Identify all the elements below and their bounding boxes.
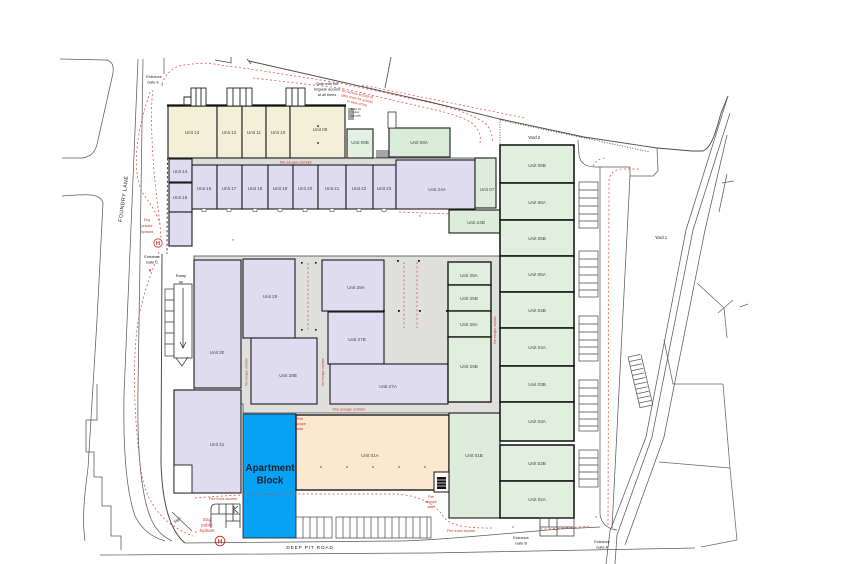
svg-text:Unit 03A: Unit 03A (528, 419, 547, 424)
svg-text:fire escape corridor: fire escape corridor (321, 357, 325, 385)
svg-text:Unit 04B: Unit 04B (528, 308, 546, 313)
svg-text:Apartment: Apartment (246, 463, 296, 474)
svg-text:Entrance: Entrance (513, 535, 529, 540)
svg-text:Unit 11: Unit 11 (247, 130, 262, 135)
svg-text:Fire: Fire (428, 495, 434, 499)
svg-text:fire escape corridor: fire escape corridor (245, 357, 249, 385)
svg-text:Gate B: Gate B (515, 541, 528, 546)
svg-text:Unit 24A: Unit 24A (428, 187, 447, 192)
svg-text:H: H (156, 241, 160, 247)
svg-text:stair: stair (297, 427, 305, 431)
svg-text:*: * (512, 526, 514, 532)
svg-text:H: H (218, 538, 223, 545)
svg-text:Gate C: Gate C (146, 260, 159, 265)
svg-text:car park: car park (351, 113, 361, 117)
svg-text:Unit 07: Unit 07 (480, 187, 495, 192)
svg-text:fire escape corridor: fire escape corridor (493, 315, 497, 343)
svg-text:Unit 08A: Unit 08A (410, 140, 429, 145)
svg-text:Entrance: Entrance (144, 254, 160, 259)
svg-text:Unit 31: Unit 31 (210, 442, 225, 447)
svg-text:up: up (179, 279, 183, 284)
svg-text:Gate with fire: Gate with fire (316, 81, 339, 86)
svg-text:Unit 02A: Unit 02A (528, 497, 547, 502)
svg-text:Unit 04A: Unit 04A (528, 345, 547, 350)
svg-text:Fire truck access: Fire truck access (447, 529, 475, 533)
svg-text:hydrant: hydrant (200, 528, 215, 533)
svg-text:escape: escape (425, 500, 437, 504)
svg-text:Unit 05A: Unit 05A (528, 272, 547, 277)
svg-text:*: * (419, 215, 421, 221)
svg-text:Unit 28B: Unit 28B (279, 373, 297, 378)
svg-text:Unit 18: Unit 18 (248, 186, 263, 191)
svg-text:*: * (595, 516, 597, 522)
svg-text:Unit 20: Unit 20 (298, 186, 313, 191)
svg-text:Unit 21: Unit 21 (325, 186, 340, 191)
svg-text:Block: Block (257, 476, 284, 487)
svg-text:Unit 29: Unit 29 (263, 294, 278, 299)
svg-text:Unit 02B: Unit 02B (528, 461, 546, 466)
svg-text:DEEP PIT ROAD: DEEP PIT ROAD (286, 545, 333, 551)
svg-text:Entrance: Entrance (146, 74, 162, 79)
svg-text:Unit 12: Unit 12 (222, 130, 237, 135)
svg-text:escape: escape (294, 422, 306, 426)
svg-text:Unit 17: Unit 17 (222, 186, 237, 191)
svg-text:*: * (195, 531, 197, 537)
svg-text:Gate E: Gate E (147, 80, 160, 85)
svg-text:brigade access: brigade access (314, 87, 340, 92)
svg-text:Unit 28A: Unit 28A (347, 285, 366, 290)
svg-text:Unit 16: Unit 16 (197, 186, 212, 191)
svg-text:hydrant: hydrant (141, 230, 153, 234)
svg-text:Unit 09: Unit 09 (313, 127, 328, 132)
svg-text:Unit 01A: Unit 01A (361, 453, 380, 458)
svg-text:Unit 25A: Unit 25A (460, 273, 479, 278)
svg-text:Unit 08B: Unit 08B (351, 140, 369, 145)
svg-text:Entrance: Entrance (594, 539, 610, 544)
svg-text:Unit 03B: Unit 03B (528, 382, 546, 387)
svg-text:Unit 15: Unit 15 (173, 195, 188, 200)
svg-text:Unit 27B: Unit 27B (348, 337, 366, 342)
svg-text:Unit 06A: Unit 06A (528, 200, 547, 205)
svg-text:Ramp: Ramp (176, 273, 186, 278)
svg-text:*: * (161, 84, 163, 90)
svg-text:Unit 27A: Unit 27A (379, 384, 398, 389)
svg-text:Unit 10: Unit 10 (271, 130, 286, 135)
svg-text:Unit 14: Unit 14 (173, 169, 188, 174)
svg-text:Unit 24B: Unit 24B (467, 220, 485, 225)
svg-text:Fire truck access: Fire truck access (209, 497, 237, 501)
svg-text:Yard 1: Yard 1 (655, 235, 668, 240)
svg-text:Gate A: Gate A (596, 545, 608, 550)
svg-text:public: public (201, 523, 213, 528)
svg-text:Unit 19: Unit 19 (273, 186, 288, 191)
svg-text:Fire: Fire (297, 417, 303, 421)
svg-text:Unit 25B: Unit 25B (460, 296, 478, 301)
svg-text:Unit 13: Unit 13 (185, 130, 200, 135)
svg-text:stair: stair (428, 505, 436, 509)
svg-text:Unit 26A: Unit 26A (460, 322, 479, 327)
svg-text:Unit 30: Unit 30 (210, 350, 225, 355)
svg-text:Unit 22: Unit 22 (352, 186, 367, 191)
svg-text:private: private (141, 224, 152, 228)
svg-text:Yard 2: Yard 2 (528, 135, 541, 140)
svg-text:Unit 26B: Unit 26B (460, 364, 478, 369)
svg-text:fire escape corridor: fire escape corridor (280, 161, 312, 165)
svg-text:Exg: Exg (144, 218, 150, 222)
svg-text:*: * (232, 239, 234, 245)
svg-text:Fire escape corridor: Fire escape corridor (333, 408, 367, 412)
svg-text:at all times: at all times (318, 92, 337, 97)
svg-text:Exg: Exg (203, 517, 211, 522)
svg-text:Unit 06B: Unit 06B (528, 163, 546, 168)
svg-text:Unit 23: Unit 23 (377, 186, 392, 191)
svg-text:Unit 05B: Unit 05B (528, 236, 546, 241)
svg-text:Unit 01B: Unit 01B (465, 453, 483, 458)
